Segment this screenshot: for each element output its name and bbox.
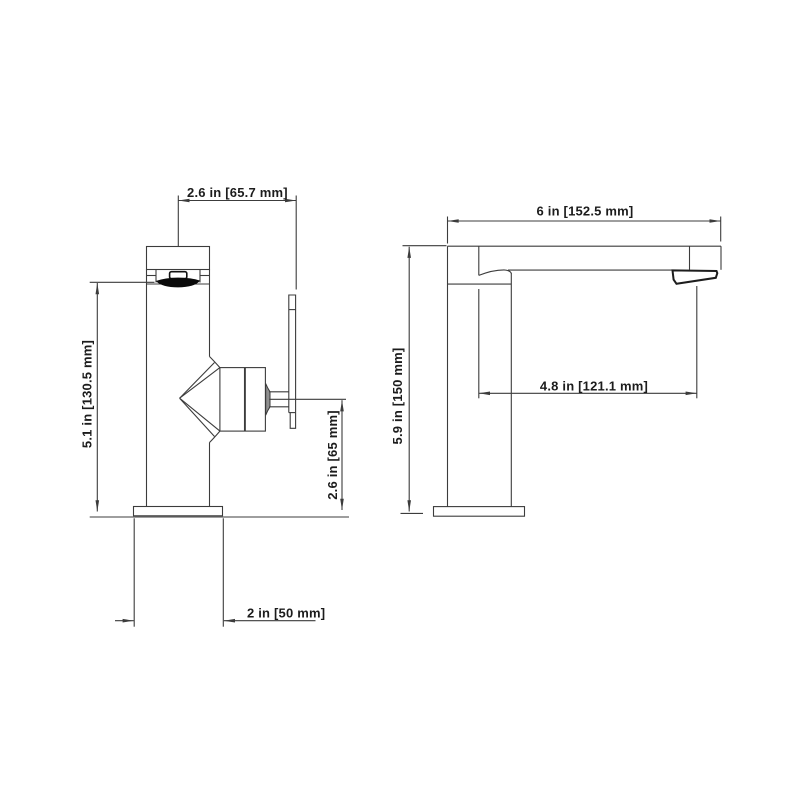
svg-text:4.8 in [121.1 mm]: 4.8 in [121.1 mm] (540, 379, 648, 394)
svg-text:2.6 in [65.7 mm]: 2.6 in [65.7 mm] (187, 185, 288, 200)
svg-text:6 in [152.5 mm]: 6 in [152.5 mm] (537, 204, 634, 219)
svg-text:2.6 in [65 mm]: 2.6 in [65 mm] (325, 410, 340, 500)
svg-text:5.1 in [130.5 mm]: 5.1 in [130.5 mm] (80, 340, 95, 448)
svg-text:5.9 in [150 mm]: 5.9 in [150 mm] (390, 348, 405, 445)
svg-text:2 in [50 mm]: 2 in [50 mm] (247, 606, 325, 621)
